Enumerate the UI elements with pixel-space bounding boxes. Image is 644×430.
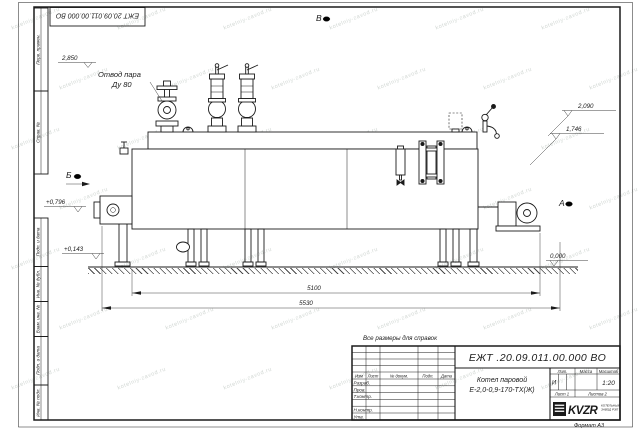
elevation-2090: 2,090 bbox=[548, 103, 616, 136]
scale-value: 1:20 bbox=[602, 380, 615, 387]
product-name-line2: Е-2,0-0,9-170-ТХ(Ж) bbox=[469, 387, 534, 394]
margin-label-sprav-no: Справ. № bbox=[36, 122, 41, 143]
burner bbox=[94, 196, 132, 224]
dimension-5530: 5530 bbox=[102, 226, 560, 311]
steam-outlet-leader bbox=[150, 82, 162, 101]
elevation-zero: 0,000 bbox=[546, 253, 588, 266]
stamp-row-ncontr: Н.контр. bbox=[354, 408, 373, 413]
steam-outlet-valve bbox=[156, 81, 178, 132]
stamp-col-izm: Изм bbox=[355, 374, 363, 379]
drawing-sheet: kotelniy-zavod.rukotelniy-zavod.rukoteln… bbox=[0, 0, 644, 430]
svg-text:Б: Б bbox=[66, 170, 72, 180]
hdr-lit: Лит. bbox=[557, 369, 568, 374]
stamp-col-list: Лист bbox=[367, 374, 379, 379]
safety-valve-1 bbox=[208, 64, 228, 132]
stamp-row-utv: Утв. bbox=[354, 414, 364, 419]
svg-text:1,746: 1,746 bbox=[566, 126, 582, 133]
svg-text:В: В bbox=[316, 13, 322, 23]
view-a-marker: А bbox=[558, 198, 572, 208]
elevation-0143: +0,143 bbox=[62, 246, 104, 259]
title-block: Изм Лист № докум. Подп. Дата Разраб. Про… bbox=[352, 346, 621, 420]
margin-label-podp-data-2: Подп. и дата bbox=[36, 346, 41, 375]
svg-text:5530: 5530 bbox=[299, 300, 313, 307]
reference-note: Все размеры для справок bbox=[363, 335, 438, 342]
stamp-col-date: Дата bbox=[440, 374, 453, 379]
svg-text:2,090: 2,090 bbox=[577, 103, 594, 110]
blowdown-pot bbox=[177, 242, 190, 252]
gauge-cock bbox=[482, 105, 500, 139]
steam-outlet-label-2: Ду 80 bbox=[111, 80, 132, 89]
steam-outlet-label-1: Отвод пара bbox=[98, 70, 141, 79]
svg-text:5100: 5100 bbox=[307, 285, 321, 292]
kvzr-logo-sub2: ЗАВОД РЭП bbox=[601, 408, 619, 412]
product-name-line1: Котел паровой bbox=[477, 376, 527, 384]
view-b-marker: Б bbox=[66, 170, 90, 186]
hdr-scale: Масштаб bbox=[599, 369, 619, 374]
margin-label-perv-primen: Перв. примен. bbox=[36, 34, 41, 65]
svg-text:А: А bbox=[558, 198, 565, 208]
stamp-row-razrab: Разраб. bbox=[354, 381, 371, 386]
stamp-col-doc: № докум. bbox=[390, 374, 408, 379]
feed-check-valve bbox=[120, 142, 128, 154]
left-margin-boxes: Перв. примен. Справ. № Подп. и дата Инв.… bbox=[34, 8, 48, 420]
corner-doc-number-box: ЕЖТ 20.09.011.00.000 ВО bbox=[50, 8, 145, 27]
stamp-col-sign: Подп. bbox=[422, 374, 433, 379]
hidden-nozzle bbox=[449, 113, 462, 129]
corner-doc-number: ЕЖТ 20.09.011.00.000 ВО bbox=[55, 12, 139, 19]
margin-label-vzam-inv: Взам. инв. № bbox=[36, 305, 41, 333]
view-v-marker: В bbox=[316, 13, 330, 23]
doc-number: ЕЖТ .20.09.011.00.000 ВО bbox=[469, 352, 606, 364]
svg-text:2,850: 2,850 bbox=[61, 55, 78, 62]
elevation-2850: 2,850 bbox=[58, 55, 96, 68]
elevation-1746: 1,746 bbox=[530, 126, 604, 165]
svg-text:+0,143: +0,143 bbox=[64, 246, 84, 253]
stamp-row-tcontr: Т.контр. bbox=[354, 394, 373, 399]
level-gauge-assembly bbox=[419, 141, 444, 184]
sheets-total: Листов 2 bbox=[587, 392, 607, 397]
elevation-0796: +0,796 bbox=[44, 199, 86, 212]
margin-label-inv-podl: Инв. № подл. bbox=[36, 388, 41, 417]
margin-label-inv-dubl: Инв. № дубл. bbox=[36, 270, 41, 298]
margin-label-podp-data-1: Подп. и дата bbox=[36, 227, 41, 256]
drawing-canvas: Перв. примен. Справ. № Подп. и дата Инв.… bbox=[0, 0, 644, 430]
safety-valve-2 bbox=[238, 64, 258, 132]
sheet-number: Лист 1 bbox=[554, 392, 569, 397]
svg-text:+0,796: +0,796 bbox=[46, 199, 66, 206]
kvzr-logo: KVZR КОТЕЛЬНЫЙ ЗАВОД РЭП bbox=[553, 402, 621, 417]
hdr-mass: Масса bbox=[580, 369, 593, 374]
stamp-row-prov: Пров. bbox=[354, 387, 366, 392]
feed-pump-unit bbox=[478, 202, 540, 231]
kvzr-logo-icon bbox=[553, 402, 566, 416]
kvzr-logo-text: KVZR bbox=[568, 405, 599, 417]
nozzle-stub bbox=[452, 129, 459, 132]
format-label: Формат А3 bbox=[574, 423, 605, 429]
boiler-drawing bbox=[88, 64, 578, 267]
svg-text:0,000: 0,000 bbox=[550, 253, 566, 260]
lit-value: И bbox=[552, 381, 557, 387]
